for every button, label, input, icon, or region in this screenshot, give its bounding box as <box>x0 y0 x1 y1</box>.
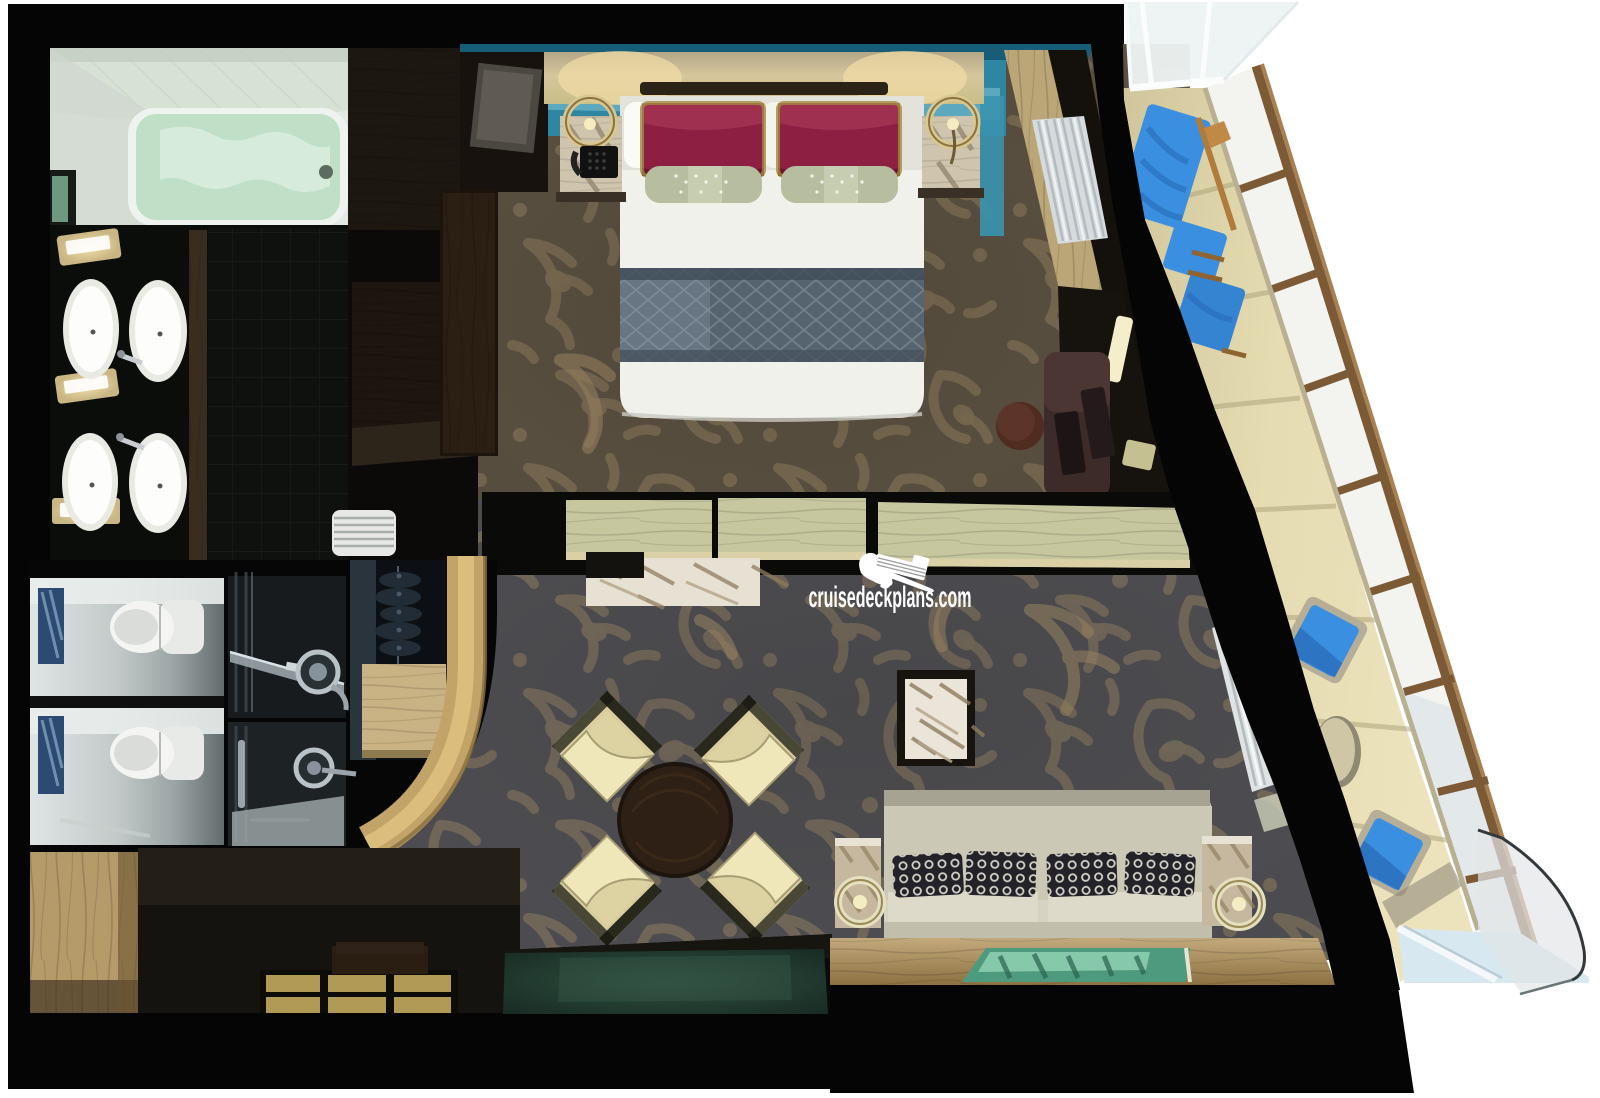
svg-text:cruisedeckplans.com: cruisedeckplans.com <box>809 581 972 614</box>
